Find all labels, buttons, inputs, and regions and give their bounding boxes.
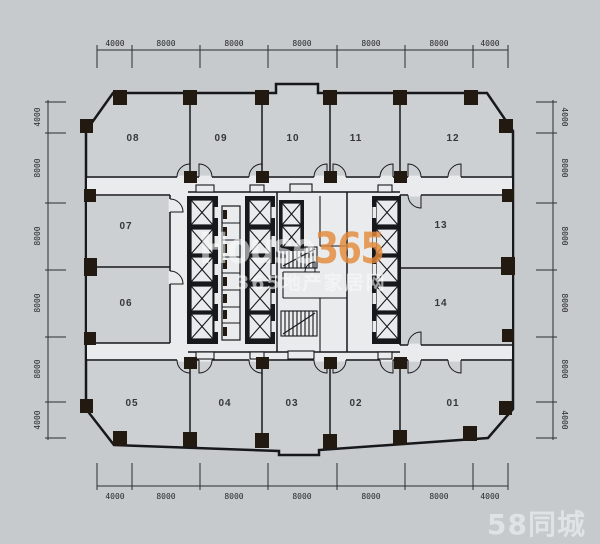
- elevator-icon: [249, 200, 271, 225]
- column: [255, 433, 269, 448]
- dimension-label: 8000: [292, 492, 311, 501]
- service-lifts: [279, 200, 304, 251]
- dimension-label: 8000: [560, 359, 569, 378]
- dimension-label: 8000: [361, 492, 380, 501]
- column: [323, 434, 337, 449]
- column: [183, 90, 197, 105]
- room-label-05: 05: [125, 398, 138, 409]
- dimension-label: 8000: [560, 226, 569, 245]
- column: [256, 171, 269, 183]
- column: [394, 171, 407, 183]
- room-label-08: 08: [126, 133, 139, 144]
- room-label-03: 03: [285, 398, 298, 409]
- column: [394, 357, 407, 369]
- dimension-label: 4000: [33, 107, 42, 126]
- dimension-label: 4000: [33, 410, 42, 429]
- elevator-icon: [249, 314, 271, 339]
- column: [324, 357, 337, 369]
- column: [80, 119, 93, 133]
- dimension-label: 4000: [105, 492, 124, 501]
- dimension-label: 8000: [33, 226, 42, 245]
- column: [184, 171, 197, 183]
- dimension-label: 8000: [33, 359, 42, 378]
- column: [502, 189, 514, 202]
- column: [84, 189, 96, 202]
- dimension-label: 8000: [429, 492, 448, 501]
- column: [499, 401, 512, 415]
- elevator-icon: [376, 286, 398, 311]
- room-label-13: 13: [434, 220, 447, 231]
- elevator-icon: [191, 314, 213, 339]
- room-label-09: 09: [214, 133, 227, 144]
- column: [183, 432, 197, 447]
- dimension-label: 8000: [361, 39, 380, 48]
- column: [256, 357, 269, 369]
- column: [393, 430, 407, 445]
- column: [323, 90, 337, 105]
- column: [501, 257, 515, 275]
- column: [502, 329, 514, 342]
- column: [113, 90, 127, 105]
- elevator-icon: [249, 286, 271, 311]
- top-dimension-line: 4000 8000 8000 8000 8000 8000 4000: [97, 39, 508, 68]
- elevator-icon: [249, 257, 271, 282]
- room-label-10: 10: [286, 133, 299, 144]
- room-label-06: 06: [119, 298, 132, 309]
- room-label-11: 11: [350, 133, 363, 144]
- elevator-icon: [376, 229, 398, 254]
- dimension-label: 8000: [156, 492, 175, 501]
- column: [184, 357, 197, 369]
- column: [393, 90, 407, 105]
- room-label-14: 14: [434, 298, 447, 309]
- dimension-label: 4000: [480, 39, 499, 48]
- column: [463, 426, 477, 441]
- elevator-icon: [191, 229, 213, 254]
- dimension-label: 8000: [292, 39, 311, 48]
- room-label-01: 01: [446, 398, 459, 409]
- dimension-label: 8000: [156, 39, 175, 48]
- dimension-label: 8000: [560, 158, 569, 177]
- room-label-12: 12: [446, 133, 459, 144]
- elevator-icon: [249, 229, 271, 254]
- right-dimension-line: 4000 8000 8000 8000 8000 4000: [536, 100, 569, 440]
- dimension-label: 4000: [560, 107, 569, 126]
- elevator-icon: [376, 257, 398, 282]
- column: [324, 171, 337, 183]
- elevator-bank-left: [187, 196, 218, 344]
- dimension-label: 4000: [480, 492, 499, 501]
- column: [255, 90, 269, 105]
- dimension-label: 8000: [224, 39, 243, 48]
- room-label-04: 04: [218, 398, 231, 409]
- elevator-icon: [376, 314, 398, 339]
- elevator-bank-right: [372, 196, 401, 344]
- floor-plan-drawing: 08 09 10 11 12 07 06 13 14 05 04 03 02 0…: [0, 0, 600, 544]
- column: [80, 399, 93, 413]
- dimension-label: 8000: [429, 39, 448, 48]
- elevator-bank-middle: [245, 196, 275, 344]
- elevator-icon: [191, 257, 213, 282]
- toilet-stalls: [222, 206, 240, 340]
- dimension-label: 8000: [33, 158, 42, 177]
- column: [84, 332, 96, 345]
- elevator-icon: [191, 286, 213, 311]
- elevator-icon: [191, 200, 213, 225]
- dimension-label: 4000: [105, 39, 124, 48]
- dimension-label: 4000: [560, 410, 569, 429]
- column: [499, 119, 513, 133]
- dimension-label: 8000: [560, 293, 569, 312]
- room-label-07: 07: [119, 221, 132, 232]
- column: [464, 90, 478, 105]
- floor-plan-page: 08 09 10 11 12 07 06 13 14 05 04 03 02 0…: [0, 0, 600, 544]
- column: [84, 258, 97, 276]
- room-label-02: 02: [349, 398, 362, 409]
- dimension-label: 8000: [224, 492, 243, 501]
- elevator-icon: [376, 200, 398, 225]
- column: [113, 431, 127, 446]
- dimension-label: 8000: [33, 293, 42, 312]
- left-dimension-line: 4000 8000 8000 8000 8000 4000: [33, 100, 66, 440]
- bottom-dimension-line: 4000 8000 8000 8000 8000 8000 4000: [97, 463, 508, 501]
- screenshot-root: { "plan": { "rooms": { "r01": "01", "r02…: [0, 0, 600, 544]
